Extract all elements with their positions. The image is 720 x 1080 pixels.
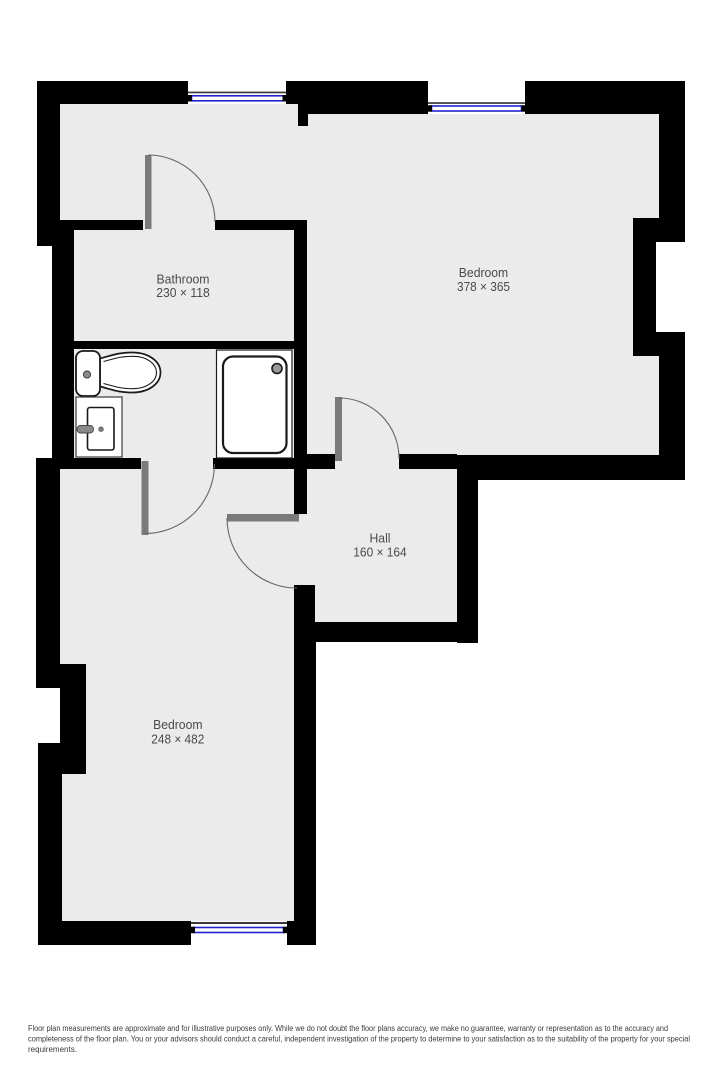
svg-text:378 × 365: 378 × 365 xyxy=(457,279,510,294)
svg-text:Bedroom: Bedroom xyxy=(153,717,202,732)
svg-text:completeness of the floor plan: completeness of the floor plan. You or y… xyxy=(28,1035,690,1044)
svg-text:160 × 164: 160 × 164 xyxy=(353,545,406,560)
svg-text:230 × 118: 230 × 118 xyxy=(156,285,210,300)
svg-text:Hall: Hall xyxy=(370,530,391,545)
svg-text:requirements.: requirements. xyxy=(28,1045,77,1054)
svg-text:Bedroom: Bedroom xyxy=(459,265,508,280)
svg-text:248 × 482: 248 × 482 xyxy=(151,731,204,746)
svg-text:Bathroom: Bathroom xyxy=(157,271,210,286)
svg-text:Floor plan measurements are ap: Floor plan measurements are approximate … xyxy=(28,1024,668,1033)
